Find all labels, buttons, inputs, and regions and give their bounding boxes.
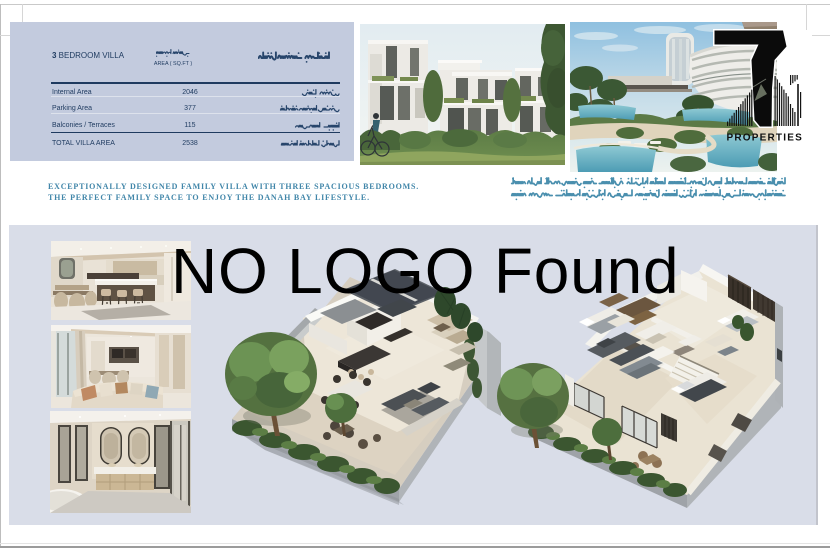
svg-text:PROPERTIES: PROPERTIES <box>727 133 803 144</box>
